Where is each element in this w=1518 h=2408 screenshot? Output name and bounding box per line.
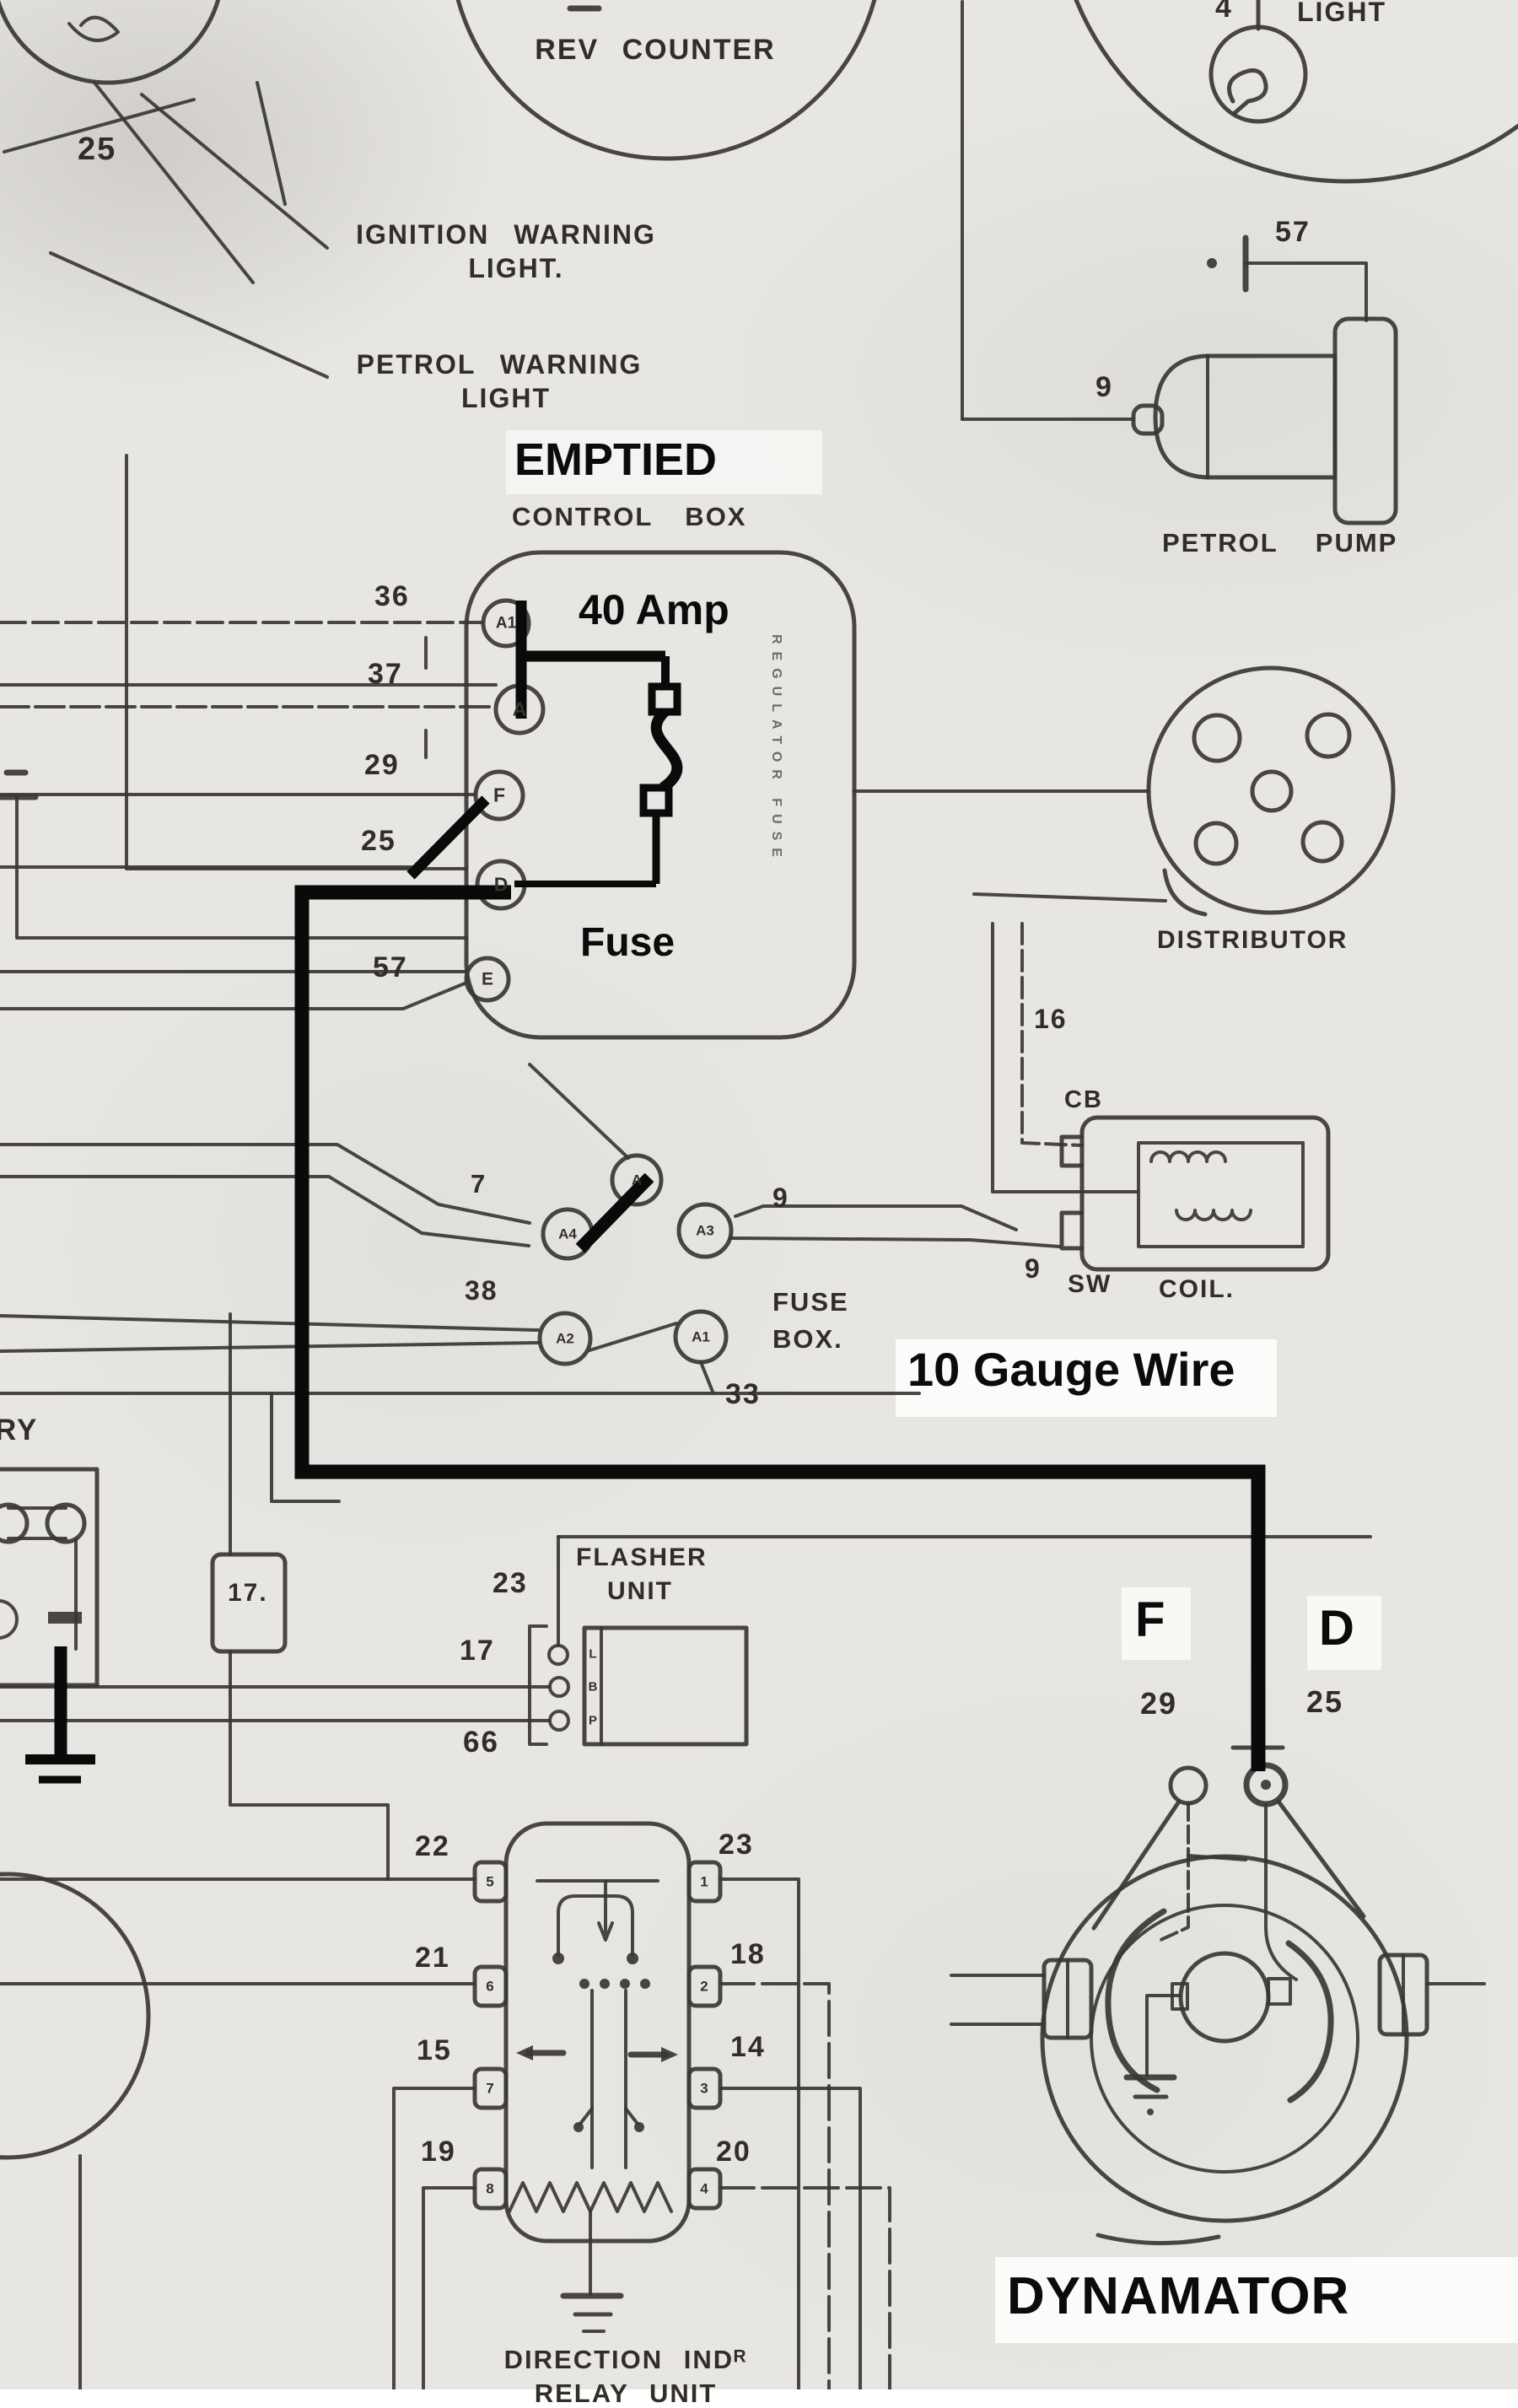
flasher-label-line1: FLASHER [576,1545,708,1570]
relay-terminal-5: 5 [486,1875,493,1889]
flasher-label-line2: UNIT [607,1579,673,1604]
direction-indicator-relay [0,1824,890,2389]
relay-caption-line1: DIRECTION INDᴿ [504,2346,748,2373]
fusebox-terminal-a1: A1 [692,1330,710,1344]
fusebox-terminal-a4: A4 [558,1227,577,1242]
dynamator-label: DYNAMATOR [1007,2271,1349,2323]
fusebox-wire-33: 33 [725,1380,761,1409]
wire-number-25-top: 25 [78,133,116,165]
starter-motor-partial [0,1874,148,2389]
flasher-wire-23: 23 [493,1569,528,1597]
battery [0,1469,97,1685]
control-box-label: CONTROL BOX [512,504,747,530]
coil-label: COIL. [1159,1277,1235,1302]
distributor [854,668,1393,914]
petrol-pump-label: PETROL PUMP [1162,530,1397,556]
relay-terminal-6: 6 [486,1980,493,1994]
left-wires [0,455,496,1009]
flasher-wire-66: 66 [463,1727,499,1757]
dynamator [951,1748,1484,2244]
pump-wire-9: 9 [1095,373,1113,401]
relay-wire-20: 20 [716,2137,751,2166]
fusebox-label-line1: FUSE [772,1289,849,1315]
light-label: LIGHT [1297,0,1386,25]
petrol-pump [962,238,1396,523]
relay-wire-19: 19 [421,2137,456,2166]
light-wire-number: 4 [1215,0,1233,22]
flasher-terminal-p: P [589,1715,597,1727]
leader-lines [4,83,327,377]
relay-terminal-3: 3 [700,2082,708,2096]
coil-cb-label: CB [1064,1088,1103,1112]
ignition-coil [993,924,1328,1269]
coil-wire-9: 9 [1025,1255,1042,1282]
fusebox-wire-9: 9 [772,1184,789,1211]
distributor-label: DISTRIBUTOR [1157,928,1348,953]
ignition-warning-line2: LIGHT. [468,255,563,282]
relay-terminal-2: 2 [700,1980,708,1994]
ignition-warning-line1: IGNITION WARNING [356,221,656,248]
wire-number-29: 29 [364,751,400,779]
coil-sw-label: SW [1068,1272,1112,1297]
relay-wire-15: 15 [417,2036,452,2065]
wire-number-25: 25 [361,827,396,855]
emptied-annotation: EMPTIED [514,437,717,482]
dynamator-f-annotation: F [1135,1596,1165,1645]
dynamator-wire-25: 25 [1306,1687,1343,1717]
terminal-f: F [493,786,505,805]
battery-label-partial: RY [0,1415,38,1445]
regulator-side-text: REGULATOR FUSE [769,634,783,896]
relay-wire-23: 23 [719,1830,754,1859]
dynamator-d-annotation: D [1319,1604,1354,1653]
wire-number-36: 36 [374,582,410,611]
flasher-terminal-b: B [589,1681,598,1694]
relay-terminal-7: 7 [486,2082,493,2096]
relay-wire-21: 21 [415,1943,450,1972]
wire-number-37: 37 [368,660,403,688]
wire-number-57: 57 [373,953,408,982]
relay-terminal-4: 4 [700,2182,708,2196]
petrol-warning-line1: PETROL WARNING [357,351,643,378]
fusebox-terminal-a: A [632,1173,642,1188]
coil-wire-16: 16 [1034,1005,1068,1032]
fusebox-wire-7: 7 [471,1171,487,1197]
terminal-a: A [513,700,527,719]
forty-amp-annotation: 40 Amp [579,589,729,631]
relay-caption-line2: RELAY UNIT [535,2380,718,2406]
terminal-d: D [494,875,509,895]
relay-terminal-8: 8 [486,2182,493,2196]
relay-wire-22: 22 [415,1832,450,1861]
fusebox-label-line2: BOX. [772,1326,843,1352]
gauge-wire-annotation: 10 Gauge Wire [907,1346,1235,1393]
dynamator-wire-29: 29 [1140,1689,1177,1719]
pump-wire-57: 57 [1275,218,1311,246]
flasher-terminal-l: L [589,1648,596,1661]
fuse-annotation: Fuse [580,923,675,963]
rev-counter-label: REV COUNTER [535,35,775,64]
fusebox-terminal-a2: A2 [556,1332,574,1346]
relay-wire-18: 18 [730,1940,766,1969]
terminal-e: E [482,971,493,989]
fusebox-terminal-a3: A3 [696,1224,714,1238]
petrol-warning-line2: LIGHT [461,385,551,412]
relay-wire-14: 14 [730,2033,766,2061]
junction-17-label: 17. [228,1581,268,1606]
fusebox-wire-38: 38 [465,1277,498,1304]
relay-terminal-1: 1 [700,1875,708,1889]
terminal-a1: A1 [496,616,516,632]
flasher-wire-17: 17 [460,1636,495,1665]
